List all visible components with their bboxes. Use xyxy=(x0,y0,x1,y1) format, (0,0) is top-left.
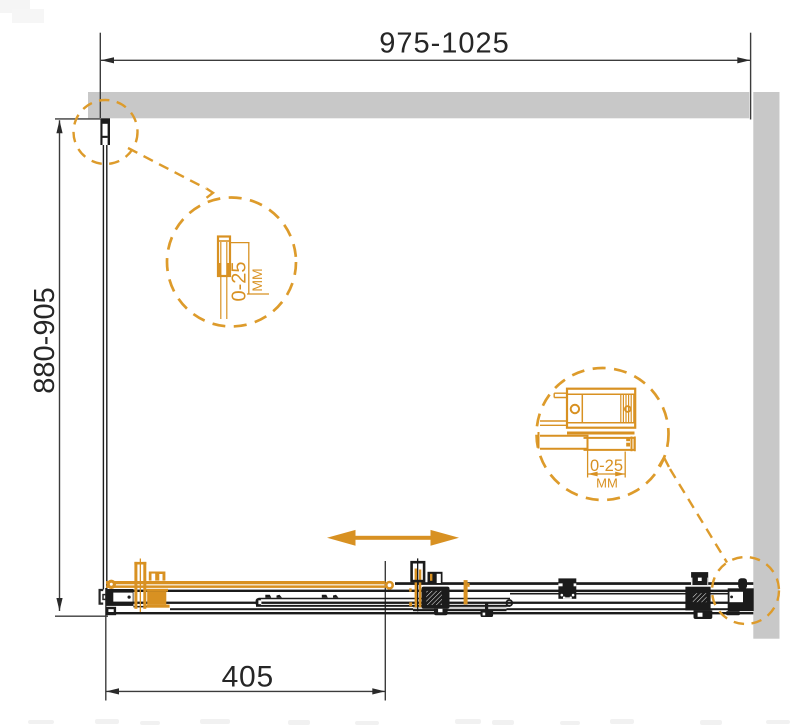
svg-text:ММ: ММ xyxy=(249,268,265,291)
svg-text:880-905: 880-905 xyxy=(29,287,61,393)
svg-text:ММ: ММ xyxy=(596,476,618,491)
svg-text:405: 405 xyxy=(222,661,274,694)
svg-text:0-25: 0-25 xyxy=(590,457,623,475)
svg-text:975-1025: 975-1025 xyxy=(379,28,510,60)
svg-text:0-25: 0-25 xyxy=(229,261,251,301)
